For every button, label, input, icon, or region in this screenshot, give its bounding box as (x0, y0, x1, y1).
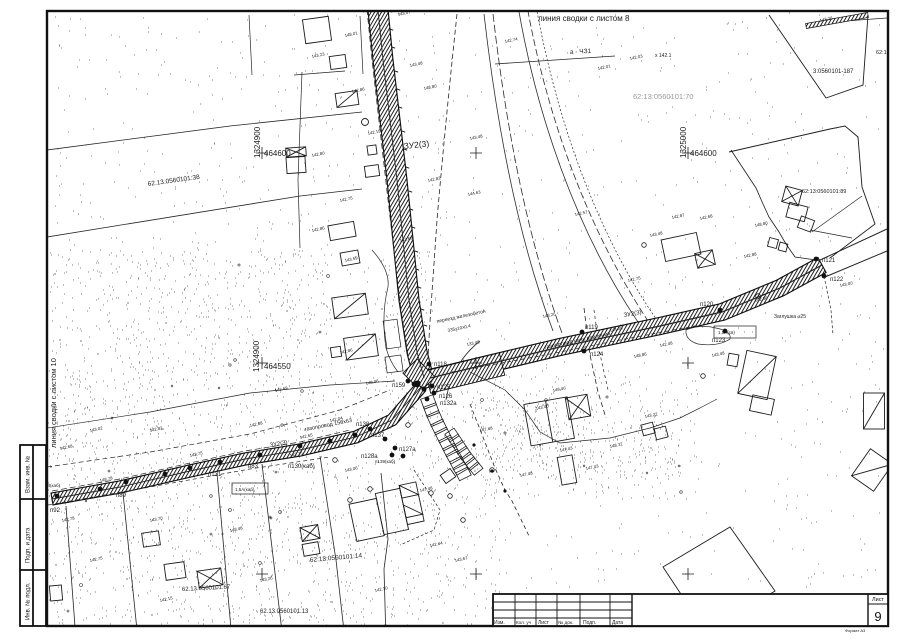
svg-text:1,5А(каб): 1,5А(каб) (235, 487, 255, 492)
svg-text:п139(каб): п139(каб) (375, 459, 396, 464)
svg-text:1324900: 1324900 (252, 340, 261, 372)
svg-text:464600: 464600 (690, 149, 717, 158)
svg-text:Дата: Дата (612, 620, 623, 626)
svg-text:62:13:0560101:70: 62:13:0560101:70 (633, 92, 693, 101)
svg-text:п118: п118 (434, 362, 447, 368)
svg-text:п120: п120 (700, 302, 714, 308)
svg-text:п138: п138 (356, 422, 370, 428)
svg-text:п83: п83 (248, 464, 259, 470)
svg-text:п123: п123 (712, 338, 726, 344)
svg-text:Лист: Лист (872, 597, 884, 603)
svg-text:62.13.0560101.13: 62.13.0560101.13 (260, 609, 309, 615)
svg-text:линия сводки с листом 8: линия сводки с листом 8 (538, 14, 630, 23)
svg-text:х 142.1: х 142.1 (655, 53, 672, 59)
svg-text:62:13:0560101:89: 62:13:0560101:89 (802, 189, 846, 195)
svg-text:линия сводки с листом 10: линия сводки с листом 10 (49, 358, 58, 448)
svg-text:п119: п119 (585, 325, 598, 331)
svg-text:а - ЧЗ1: а - ЧЗ1 (570, 48, 592, 56)
svg-text:п125: п125 (437, 385, 451, 391)
svg-text:9: 9 (874, 609, 881, 624)
svg-text:п121: п121 (822, 258, 836, 264)
svg-text:Инв. № подл.: Инв. № подл. (25, 582, 32, 620)
svg-text:п159: п159 (392, 383, 406, 389)
svg-text:1324900: 1324900 (253, 126, 262, 158)
svg-text:464550: 464550 (264, 362, 291, 371)
svg-text:1325000: 1325000 (679, 126, 688, 158)
svg-text:464600: 464600 (264, 149, 291, 158)
svg-text:п127а: п127а (399, 447, 416, 453)
svg-text:Подп.: Подп. (583, 620, 596, 626)
svg-text:п126: п126 (439, 394, 453, 400)
svg-text:Изм.: Изм. (494, 620, 505, 626)
svg-text:№ док.: № док. (558, 620, 573, 626)
svg-text:п131: п131 (208, 472, 222, 478)
svg-text:п137: п137 (371, 433, 385, 439)
svg-text:62:1: 62:1 (876, 50, 887, 56)
svg-text:Подп. и дата: Подп. и дата (26, 527, 32, 563)
svg-text:Взам. инв. №: Взам. инв. № (25, 456, 32, 493)
svg-text:1,5А(св): 1,5А(св) (718, 330, 735, 335)
svg-text:п89: п89 (116, 493, 127, 499)
svg-text:п132а: п132а (440, 401, 457, 407)
svg-text:Заглушка ⌀25: Заглушка ⌀25 (774, 314, 806, 320)
svg-text:п130(каб): п130(каб) (288, 464, 315, 470)
svg-text:Формат А3: Формат А3 (845, 628, 866, 633)
svg-text:3:0560101-187: 3:0560101-187 (813, 69, 854, 75)
svg-text:п124: п124 (590, 352, 604, 358)
svg-text:п92: п92 (50, 508, 61, 514)
svg-text:Лист: Лист (538, 620, 550, 626)
svg-text:Кол. уч: Кол. уч (516, 620, 532, 625)
